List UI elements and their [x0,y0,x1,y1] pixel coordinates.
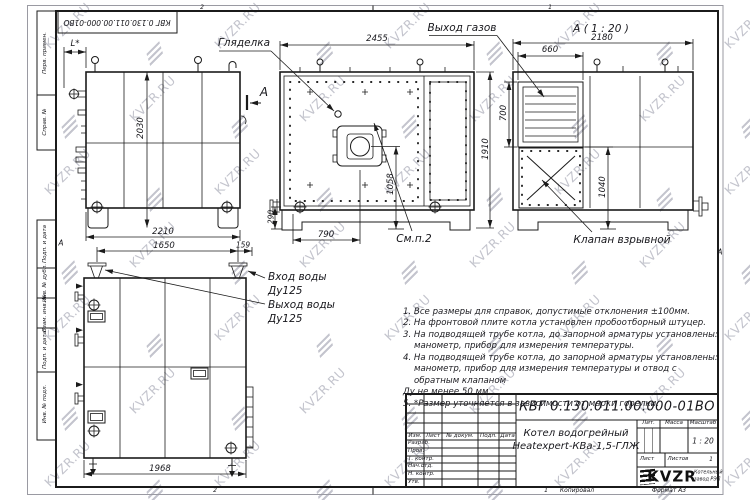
margin-label-podp-data-1: Подп. и дата [43,225,49,263]
tb-masshtab-label: Масштаб [690,421,717,427]
dim-2455: 2455 [366,35,388,44]
dim-l-star: L* [71,40,80,49]
dim-2180: 2180 [591,34,613,43]
tb-company-line2: завод РЭП [694,478,720,483]
label-peephole: Гляделка [218,38,270,49]
margin-label-podp-data-2: Подп. и дата [43,331,49,369]
dim-700: 700 [500,105,509,121]
zone-left-a: А [58,239,63,247]
tb-listov-value: 1 [709,457,713,463]
corner-stamp-designation: КВГ 0.130.011.00.000-01ВО [63,18,170,26]
dim-2210: 2210 [152,228,174,237]
tb-col-list: Лист [426,434,440,440]
footer-kopiroval: Копировал [560,488,594,494]
tb-list-label: Лист [640,457,654,463]
notes-block: 1. Все размеры для справок, допустимые о… [403,307,718,410]
dim-1040: 1040 [599,176,608,198]
tb-row-prov: Пров. [408,449,424,455]
label-flue-outlet: Выход газов [428,23,497,34]
label-explosion-valve: Клапан взрывной [573,235,670,246]
label-water-outlet-dn: Ду125 [268,314,302,325]
zone-bottom-2: 2 [213,488,217,494]
dim-290: 290 [267,210,275,224]
dim-1968: 1968 [149,465,171,474]
tb-massa-label: Масса [665,421,683,427]
tb-listov-label: Листов [668,457,689,463]
tb-scale-value: 1 : 20 [692,437,714,445]
footer-format: Формат А3 [652,488,686,494]
section-arrow-letter: А [260,86,268,98]
tb-col-izm: Изм. [408,434,421,440]
tb-row-utv: Утв. [408,480,420,486]
dim-1650: 1650 [153,242,175,251]
label-see-p2: См.п.2 [396,234,431,245]
margin-label-perv-primen: Перв. примен. [43,32,49,74]
note-line: манометр, прибор для измерения температу… [403,364,718,387]
note-line: 1. Все размеры для справок, допустимые о… [403,307,718,318]
tb-col-data: Дата [500,434,514,440]
label-water-outlet: Выход воды [268,300,335,311]
dim-159: 159 [236,241,250,249]
margin-label-inv-podl: Инв. № подл. [43,385,49,424]
dim-2030: 2030 [137,117,146,139]
note-line: 4. На подводящей трубе котла, до запорно… [403,353,718,364]
note-line: 2. На фронтовой плите котла установлен п… [403,318,718,329]
title-product-model: Heatexpert-КВа-1,5-ГЛЖ [512,442,639,452]
tb-company-line1: Котельный [694,471,723,476]
note-line: 3. На подводящей трубе котла, до запорно… [403,330,718,341]
note-line: 5. *Размер уточняется в зависимости от м… [403,399,718,410]
tb-row-razrab: Разраб. [408,441,430,447]
dim-790: 790 [318,231,334,240]
kvzr-logo-text: KVZR [647,470,697,485]
margin-label-vzam-inv: Взам. инв. № [43,294,49,332]
tb-row-nkontr: Н. контр. [408,472,435,478]
dim-1910: 1910 [482,138,491,160]
zone-top-2: 2 [200,5,204,11]
note-line: манометр, прибор для измерения температу… [403,341,718,352]
drawing-sheet: KVZR.RUKVZR.RUKVZR.RUKVZR.RUKVZR.RUKVZR.… [0,0,750,500]
tb-row-tkontr: Т. контр. [408,457,434,463]
label-water-inlet: Вход воды [268,272,327,283]
dim-660: 660 [542,46,558,55]
label-water-inlet-dn: Ду125 [268,286,302,297]
dim-1058: 1058 [387,173,396,195]
zone-bottom-1: 1 [544,488,548,494]
tb-col-podp: Подп. [480,434,497,440]
tb-lit-label: Лит. [642,421,655,427]
tb-col-dokum: № докум. [446,434,474,440]
tb-row-nachotd: Нач.отд. [408,464,433,470]
zone-top-1: 1 [548,5,552,11]
title-product-name: Котел водогрейный [524,429,629,439]
note-line: Ду не менее 50 мм. [403,387,718,398]
margin-label-sprav-no: Справ. № [43,108,49,135]
zone-right-a: А [717,248,722,256]
